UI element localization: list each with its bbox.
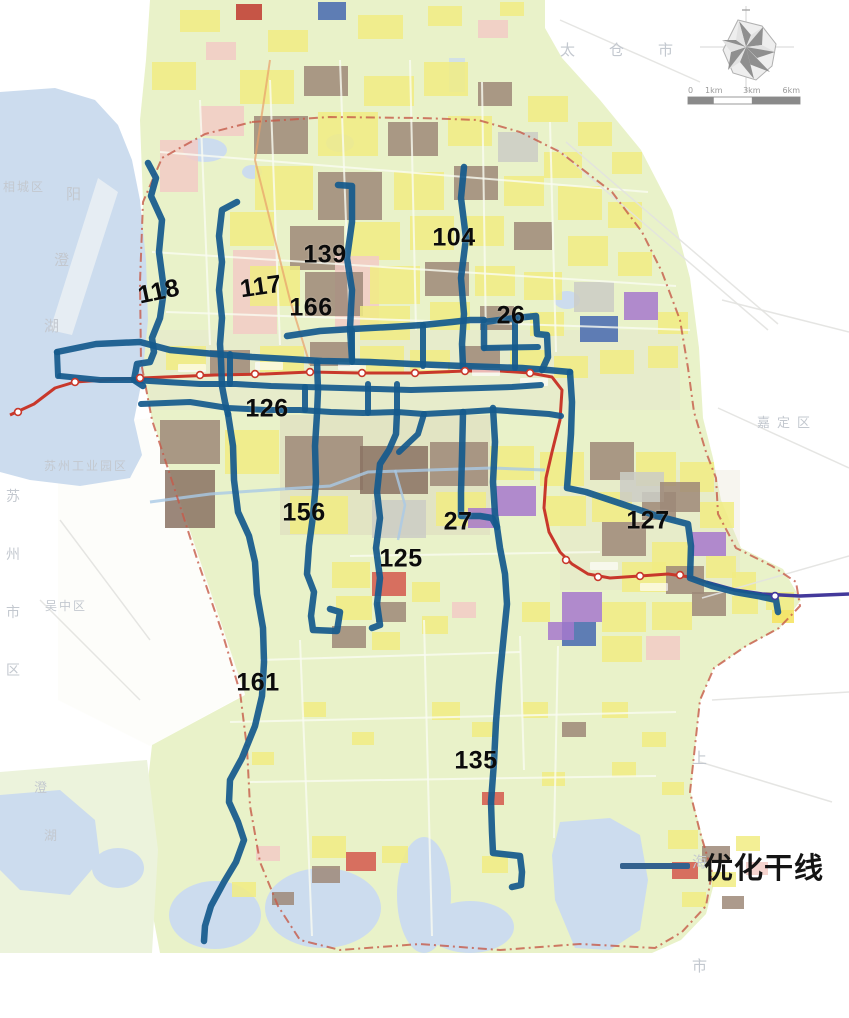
route-number-125: 125	[379, 545, 422, 574]
rail-station	[307, 369, 314, 376]
rail-station	[563, 557, 570, 564]
place-label-1: 嘉定区	[757, 417, 817, 431]
scale-label: 0	[688, 86, 693, 95]
route-number-104: 104	[432, 224, 475, 253]
route-number-26: 26	[497, 302, 526, 331]
rail-station	[72, 379, 79, 386]
route-number-161: 161	[236, 669, 279, 698]
rail-station	[252, 371, 259, 378]
route-number-127: 127	[626, 507, 669, 536]
network-line-2	[57, 352, 58, 376]
route-number-166: 166	[289, 294, 332, 323]
rail-station	[359, 370, 366, 377]
route-number-156: 156	[282, 499, 325, 528]
route-number-117: 117	[238, 270, 283, 305]
rail-station	[527, 370, 534, 377]
rail-station	[412, 370, 419, 377]
place-label-10: 澄	[34, 782, 47, 796]
route-number-135: 135	[454, 747, 497, 776]
place-label-9: 湖	[44, 318, 59, 335]
scale-label: 6km	[782, 86, 800, 95]
network-line-9	[484, 347, 538, 348]
rail-station	[137, 375, 144, 382]
scale-label: 3km	[743, 86, 761, 95]
route-number-126: 126	[245, 395, 288, 424]
rail-station	[197, 372, 204, 379]
rail-station	[15, 409, 22, 416]
place-label-5: 苏 州 市 区	[6, 468, 20, 700]
route-number-27: 27	[444, 508, 473, 537]
legend-label: 优化干线	[704, 845, 824, 887]
legend: 优化干线	[620, 845, 824, 887]
route-number-139: 139	[303, 241, 346, 270]
rail-station	[462, 368, 469, 375]
place-label-8: 澄	[54, 252, 69, 269]
place-label-2: 苏州工业园区	[44, 460, 128, 473]
place-label-11: 湖	[44, 830, 57, 844]
map-canvas: 01km3km6km 11811716113916610426126156125…	[0, 0, 849, 953]
rail-station	[677, 572, 684, 579]
metro-station	[772, 593, 779, 600]
scale-label: 1km	[705, 86, 723, 95]
place-label-4: 相城区	[3, 181, 45, 194]
rail-station	[595, 574, 602, 581]
map-image: 01km3km6km	[0, 0, 849, 953]
place-label-7: 阳	[66, 186, 81, 203]
place-label-0: 太仓市	[560, 42, 707, 59]
place-label-3: 吴中区	[45, 600, 87, 613]
rail-station	[637, 573, 644, 580]
legend-line-swatch	[620, 863, 690, 869]
